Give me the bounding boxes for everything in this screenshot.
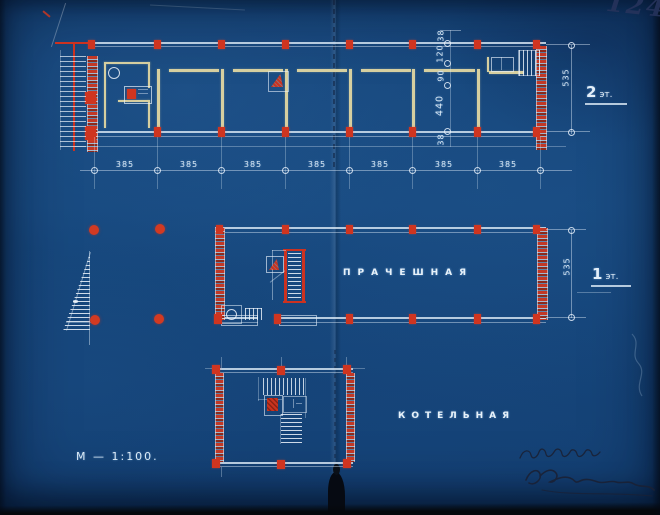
scratch-line-1 <box>51 3 66 47</box>
grid-guide <box>412 137 413 189</box>
dim-tick-circle <box>568 227 575 234</box>
column-marker <box>409 314 416 324</box>
f1-top-wall <box>215 227 546 229</box>
column-marker <box>474 40 481 49</box>
f2-partition-v2 <box>221 69 224 131</box>
grid-guide <box>94 137 95 189</box>
bay-dim-3: 385 <box>241 160 265 169</box>
column-dot <box>89 225 99 235</box>
column-marker <box>277 460 285 469</box>
bay-dim-6: 385 <box>432 160 456 169</box>
b-ext-3 <box>221 357 222 368</box>
column-dot <box>154 314 164 324</box>
bay-dim-1: 385 <box>113 160 137 169</box>
grid-guide <box>157 137 158 189</box>
grid-guide <box>221 137 222 189</box>
column-marker <box>282 40 289 49</box>
column-marker <box>216 225 223 234</box>
column-marker <box>214 314 222 324</box>
bay-dim-4: 385 <box>305 160 329 169</box>
dim-tick-circle <box>444 60 451 67</box>
dim-chain-440: 440 <box>435 94 446 118</box>
left-photo-edge <box>0 0 6 515</box>
column-marker <box>409 40 416 49</box>
floor-2-label: 2эт. <box>586 82 612 101</box>
column-marker <box>533 225 540 234</box>
f2-sill-line <box>74 146 566 147</box>
grid-guide <box>540 137 541 189</box>
f1-top-wall-inner <box>215 232 546 233</box>
f1-stair-treads <box>288 253 301 301</box>
column-marker <box>218 127 225 137</box>
b-stair-upper-treads <box>263 378 305 395</box>
b-stairwell-line-v <box>258 377 259 401</box>
floor-2-underline <box>585 103 627 105</box>
f1-dim-ext-bottom <box>546 317 586 318</box>
bottom-photo-edge <box>0 502 660 515</box>
bay-dim-2: 385 <box>177 160 201 169</box>
dim-tick-circle <box>444 82 451 89</box>
b-arrow-red <box>267 398 278 411</box>
f2-partition-h4 <box>361 69 411 72</box>
column-marker <box>533 127 540 137</box>
f2-right-stair-hatch <box>518 50 540 76</box>
column-marker <box>346 225 353 234</box>
floor-1-underline <box>591 285 631 287</box>
column-marker <box>88 40 95 49</box>
f2-basin-fixture <box>108 67 120 79</box>
f2-partition-v4 <box>349 69 352 131</box>
f2-appliance-line2 <box>138 93 148 94</box>
stair-section-axis <box>89 251 90 345</box>
b-landing-box <box>283 396 307 413</box>
column-marker <box>474 225 481 234</box>
b-ext-2 <box>353 368 365 369</box>
bay-dim-5: 385 <box>368 160 392 169</box>
f1-stair-stringer-left <box>284 251 287 302</box>
laundry-room-label: ПРАЧЕШНАЯ <box>343 268 473 278</box>
column-marker <box>409 127 416 137</box>
f2-fixture-box-right <box>491 57 514 72</box>
f2-dim-535-line <box>571 45 572 134</box>
column-marker <box>212 365 220 374</box>
f2-fixture-divider <box>501 57 502 70</box>
floor-1-label: 1эт. <box>592 264 618 283</box>
f2-appliance-line1 <box>138 89 148 90</box>
floor-2-number: 2 <box>586 83 596 101</box>
column-marker <box>212 459 220 468</box>
grid-guide <box>285 137 286 189</box>
floor-1-suffix: эт. <box>605 272 618 282</box>
column-marker <box>282 225 289 234</box>
column-marker <box>474 127 481 137</box>
dim-tick-circle <box>568 314 575 321</box>
f1-radiator <box>245 308 262 320</box>
column-marker <box>346 40 353 49</box>
boiler-room-label: КОТЕЛЬНАЯ <box>398 411 515 421</box>
f2-partition-v1 <box>157 69 160 131</box>
f2-fire-ladder-outer-rail <box>60 50 61 150</box>
blueprint-page: 124 <box>0 0 660 515</box>
fold-crease-top <box>333 0 335 170</box>
column-marker <box>343 459 351 468</box>
column-marker <box>533 314 540 324</box>
column-marker <box>409 225 416 234</box>
f2-room-alcove-wall-2 <box>148 100 150 128</box>
f1-boiler-fixture <box>226 309 237 320</box>
f2-appliance-red <box>127 89 136 99</box>
f2-fire-ladder-rungs <box>60 56 86 150</box>
scale-label: М — 1:100. <box>76 450 159 463</box>
b-stair-lower-edge <box>280 414 281 444</box>
floor-2-suffix: эт. <box>599 90 612 100</box>
f2-room-wall-right <box>148 62 150 88</box>
f2-partition-h1 <box>169 69 219 72</box>
column-marker <box>218 40 225 49</box>
grid-guide <box>349 137 350 189</box>
f1-stair-stringer-right <box>302 251 305 302</box>
dim-tick-circle <box>568 42 575 49</box>
f2-right-room-wall <box>487 57 489 72</box>
b-right-brick-wall <box>346 373 355 462</box>
column-marker <box>282 127 289 137</box>
architect-signature <box>512 438 660 504</box>
f2-room-wall-top <box>104 62 150 64</box>
b-ext-6 <box>221 467 222 477</box>
red-tick-mark <box>42 10 50 17</box>
column-marker <box>533 40 540 49</box>
column-marker <box>154 127 161 137</box>
f1-right-brick-wall <box>537 228 548 320</box>
f2-partition-v6 <box>477 69 480 131</box>
f1-stair-cap-bottom <box>283 301 306 303</box>
f2-partition-v5 <box>412 69 415 131</box>
f2-partition-h3 <box>297 69 347 72</box>
f2-room-wall-left <box>104 62 106 128</box>
dim-tick-circle <box>444 40 451 47</box>
column-marker <box>343 365 351 374</box>
f1-stairwell-wall-top <box>272 250 286 251</box>
dim-chain-120: 120 <box>436 43 445 65</box>
stair-section-highlight <box>73 300 78 303</box>
scratch-line-2 <box>150 5 245 11</box>
column-marker <box>277 366 285 375</box>
dim-tick-circle <box>444 128 451 135</box>
page-number-handwritten: 124 <box>605 0 660 24</box>
f2-dim-535-label: 535 <box>562 63 571 93</box>
column-marker <box>474 314 481 324</box>
f1-dim-535-label: 535 <box>563 252 572 282</box>
grid-guide <box>477 137 478 189</box>
b-landing-mark-2 <box>296 403 302 404</box>
b-stair-lower-treads <box>281 414 302 444</box>
column-dot <box>155 224 165 234</box>
column-marker <box>154 40 161 49</box>
f2-left-wall-pier <box>85 92 96 104</box>
f1-stair-cap-top <box>283 249 306 251</box>
column-marker <box>346 127 353 137</box>
floor-1-number: 1 <box>592 265 602 283</box>
f1-dim-ext-top <box>546 229 586 230</box>
f1-threshold-2 <box>279 315 317 326</box>
dim-tick-circle <box>568 129 575 136</box>
b-left-brick-wall <box>215 373 224 462</box>
column-dot <box>90 315 100 325</box>
column-marker <box>274 314 281 324</box>
column-marker <box>346 314 353 324</box>
b-landing-mark-1 <box>293 399 294 408</box>
f1-dim-sub-line <box>577 292 611 293</box>
bay-dim-7: 385 <box>496 160 520 169</box>
